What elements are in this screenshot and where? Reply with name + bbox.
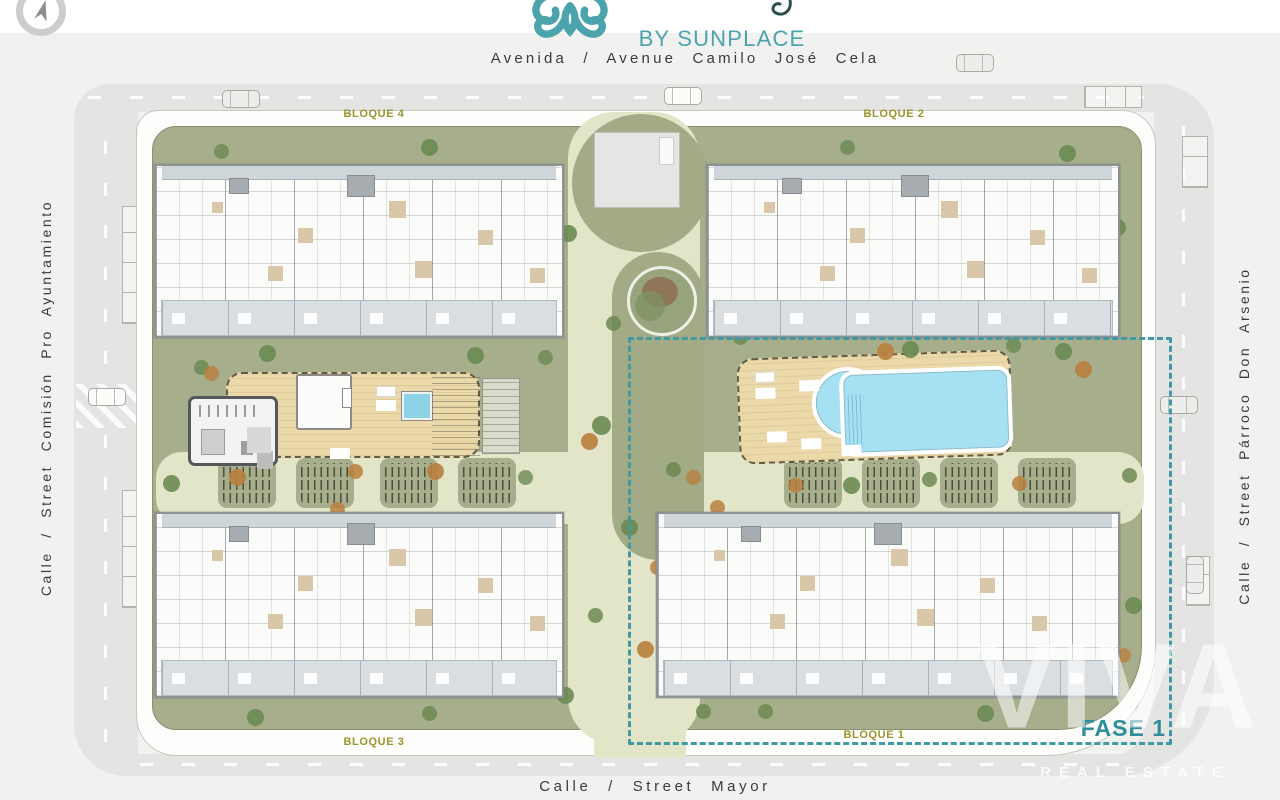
- watermark-tagline: REAL ESTATE: [1010, 764, 1260, 781]
- street-label-top: Avenida / Avenue Camilo José Cela: [340, 50, 1030, 67]
- utility-pad: [594, 132, 680, 208]
- bathroom-accents: [764, 202, 775, 213]
- label-bloque-4: BLOQUE 4: [312, 108, 436, 120]
- pergola: [482, 378, 520, 454]
- gym-building: [188, 396, 278, 466]
- garden-plot: [458, 458, 516, 508]
- label-bloque-2: BLOQUE 2: [832, 108, 956, 120]
- stair-core: [229, 526, 249, 542]
- sun-loungers: [376, 386, 396, 397]
- brand-logo-icon: [526, 0, 614, 44]
- gym-equipment-row: [199, 405, 259, 417]
- street-label-bottom: Calle / Street Mayor: [310, 778, 1000, 795]
- building-bloque-4: [154, 164, 564, 338]
- spa-pool: [402, 392, 432, 420]
- stair-core: [347, 523, 375, 545]
- parking-bay: [1182, 136, 1208, 188]
- stair-core: [782, 178, 802, 194]
- label-bloque-3: BLOQUE 3: [312, 736, 436, 748]
- utility-pad-door: [659, 137, 674, 165]
- street-label-left: Calle / Street Comisión Pro Ayuntamiento: [38, 138, 54, 658]
- gym-equipment: [201, 429, 225, 455]
- building-bloque-3: [154, 512, 564, 698]
- pool-pavilion: [296, 374, 352, 430]
- bathroom-accents: [212, 550, 223, 561]
- site-plan: BLOQUE 4 BLOQUE 2 BLOQUE 3 BLOQUE 1 FASE…: [0, 0, 1280, 800]
- brand-name: BY SUNPLACE: [612, 26, 832, 52]
- playground-grass: [635, 291, 665, 321]
- playground-area: [627, 266, 697, 336]
- stair-core: [901, 175, 929, 197]
- stair-core: [347, 175, 375, 197]
- car: [664, 87, 702, 105]
- compass-icon: [16, 0, 66, 36]
- stair-core: [229, 178, 249, 194]
- building-bloque-2: [706, 164, 1120, 338]
- street-label-right: Calle / Street Párroco Don Arsenio: [1236, 176, 1252, 696]
- terrace-band: [161, 300, 557, 336]
- pavilion-door: [342, 388, 352, 408]
- brand-script-tail: [754, 0, 800, 20]
- car: [1186, 556, 1204, 594]
- garden-plot: [380, 458, 438, 508]
- watermark: VIVA: [840, 627, 1260, 770]
- bathroom-accents: [212, 202, 223, 213]
- terrace-band: [713, 300, 1113, 336]
- trees-orange: [0, 0, 11, 11]
- car: [222, 90, 260, 108]
- parking-bay: [1084, 86, 1142, 108]
- car: [88, 388, 126, 406]
- garden-plot: [296, 458, 354, 508]
- terrace-band: [161, 660, 557, 696]
- lane-marking-left: [104, 126, 107, 742]
- sauna-decking: [432, 376, 480, 456]
